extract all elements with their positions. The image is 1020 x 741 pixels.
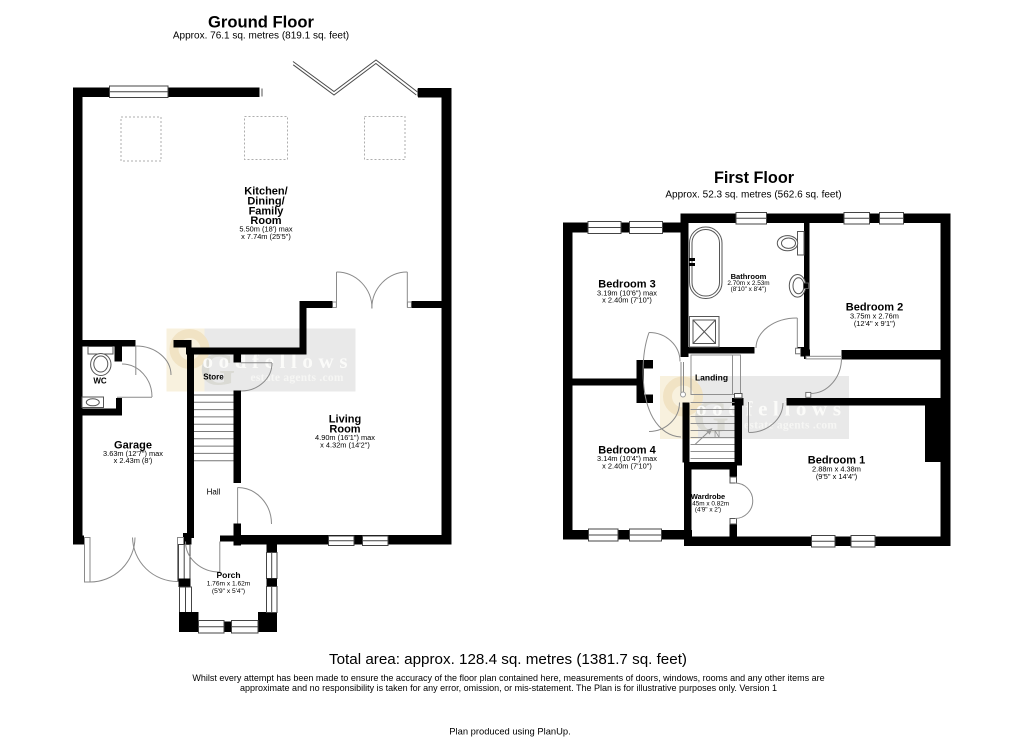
- svg-text:(4'9" x 2'): (4'9" x 2'): [695, 506, 721, 513]
- svg-text:Total area: approx. 128.4 sq.: Total area: approx. 128.4 sq. metres (13…: [329, 651, 687, 668]
- svg-text:(8'10" x 8'4"): (8'10" x 8'4"): [731, 286, 767, 293]
- svg-text:(12'4" x 9'1"): (12'4" x 9'1"): [854, 319, 895, 328]
- svg-text:Approx. 52.3 sq. metres (562.6: Approx. 52.3 sq. metres (562.6 sq. feet): [665, 190, 841, 201]
- svg-text:x 2.40m (7'10"): x 2.40m (7'10"): [602, 461, 652, 470]
- svg-text:Porch: Porch: [216, 570, 240, 580]
- svg-text:(9'5" x 14'4"): (9'5" x 14'4"): [816, 472, 857, 481]
- svg-text:approximate and no responsibil: approximate and no responsibility is tak…: [240, 683, 777, 693]
- svg-text:x 2.40m (7'10"): x 2.40m (7'10"): [602, 296, 652, 305]
- svg-text:WC: WC: [93, 377, 107, 386]
- svg-text:Landing: Landing: [695, 373, 728, 383]
- svg-text:(5'9" x 5'4"): (5'9" x 5'4"): [212, 588, 245, 595]
- svg-text:Approx. 76.1 sq. metres (819.1: Approx. 76.1 sq. metres (819.1 sq. feet): [173, 31, 349, 42]
- svg-text:x 7.74m (25'5"): x 7.74m (25'5"): [241, 232, 291, 241]
- svg-text:Whilst every attempt has been: Whilst every attempt has been made to en…: [192, 673, 824, 683]
- svg-text:First Floor: First Floor: [714, 169, 795, 187]
- svg-text:Plan produced using PlanUp.: Plan produced using PlanUp.: [449, 726, 570, 737]
- svg-text:Ground Floor: Ground Floor: [208, 13, 315, 32]
- svg-text:x 4.32m (14'2"): x 4.32m (14'2"): [320, 441, 370, 450]
- svg-text:Hall: Hall: [207, 488, 221, 497]
- svg-text:N: N: [714, 429, 720, 439]
- svg-text:x 2.43m (8'): x 2.43m (8'): [114, 456, 153, 465]
- svg-text:1.76m x 1.62m: 1.76m x 1.62m: [207, 581, 251, 588]
- svg-text:Store: Store: [203, 373, 224, 382]
